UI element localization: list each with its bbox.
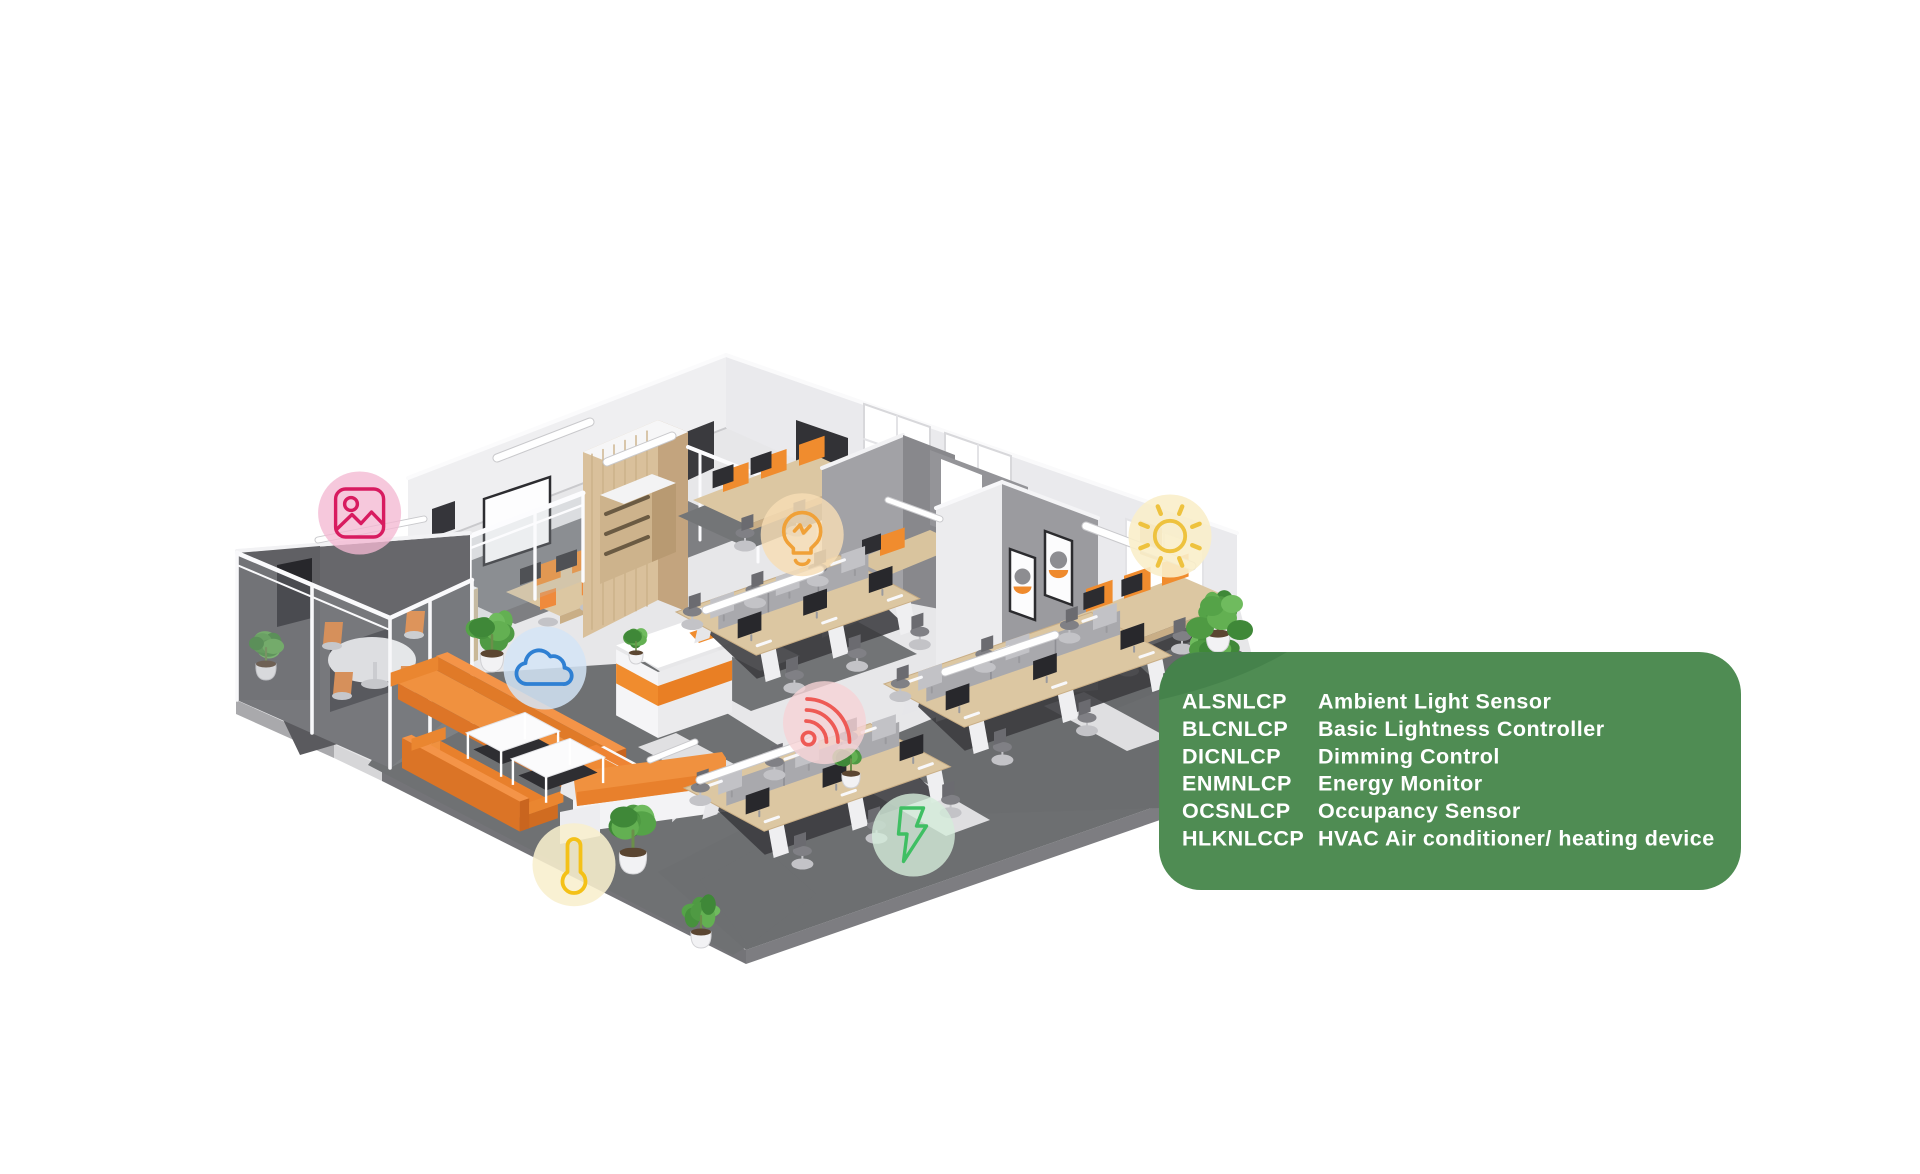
svg-text:Basic Lightness Controller: Basic Lightness Controller — [1318, 717, 1605, 741]
svg-text:HLKNLCCP: HLKNLCCP — [1182, 827, 1304, 851]
svg-text:ALSNLCP: ALSNLCP — [1182, 690, 1287, 714]
svg-text:OCSNLCP: OCSNLCP — [1182, 799, 1291, 823]
svg-text:BLCNLCP: BLCNLCP — [1182, 717, 1288, 741]
svg-text:DICNLCP: DICNLCP — [1182, 744, 1281, 768]
svg-text:Occupancy Sensor: Occupancy Sensor — [1318, 799, 1521, 823]
svg-text:Dimming Control: Dimming Control — [1318, 744, 1500, 768]
svg-text:HVAC Air conditioner/ heating: HVAC Air conditioner/ heating device — [1318, 827, 1715, 851]
svg-text:Energy Monitor: Energy Monitor — [1318, 772, 1483, 796]
svg-text:Ambient Light Sensor: Ambient Light Sensor — [1318, 690, 1552, 714]
svg-text:ENMNLCP: ENMNLCP — [1182, 772, 1292, 796]
